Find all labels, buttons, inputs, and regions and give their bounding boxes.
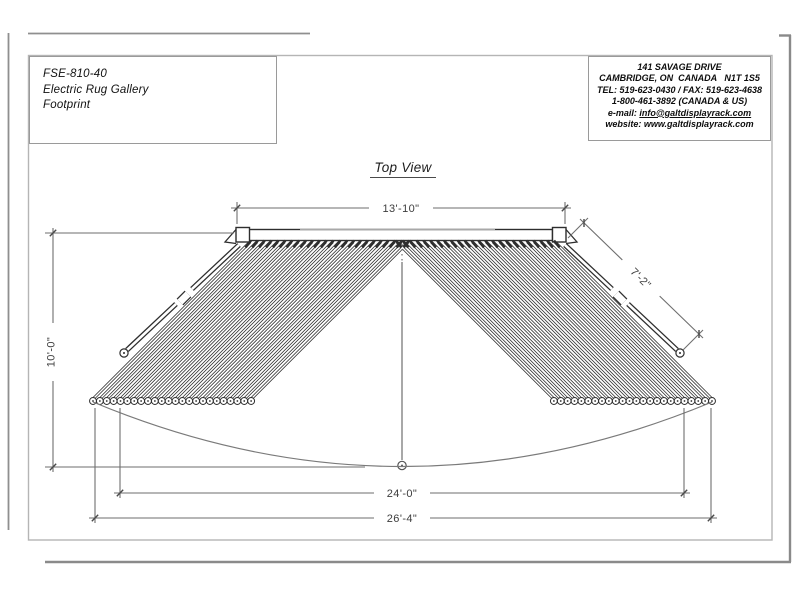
company-block: 141 SAVAGE DRIVE CAMBRIDGE, ON CANADA N1…: [588, 56, 771, 141]
rail-end-cap-right: [553, 228, 567, 243]
end-arm-ball-dot: [123, 352, 125, 354]
arm-ball-dot: [133, 400, 135, 402]
arm-ball-dot: [663, 400, 665, 402]
end-arm-ball-dot: [679, 352, 681, 354]
arm-ball-dot: [223, 400, 225, 402]
arm-ball-dot: [656, 400, 658, 402]
model-number: FSE-810-40: [43, 67, 276, 83]
arm-ball-dot: [168, 400, 170, 402]
arm-ball-dot: [161, 400, 163, 402]
arm-ball-dot: [106, 400, 108, 402]
arm-ball-dot: [243, 400, 245, 402]
view-title-text: Top View: [370, 160, 435, 178]
arm-ball-dot: [629, 400, 631, 402]
company-email: info@galtdisplayrack.com: [639, 108, 751, 118]
arm-ball-dot: [209, 400, 211, 402]
arm-ball-dot: [704, 400, 706, 402]
email-label: e-mail:: [608, 108, 640, 118]
arm-ball-dot: [188, 400, 190, 402]
drawing-sheet-page: { "title_block": { "model": "FSE-810-40"…: [0, 0, 800, 600]
view-title: Top View: [330, 159, 476, 178]
company-website: www.galtdisplayrack.com: [644, 119, 754, 129]
company-tollfree: 1-800-461-3892 (CANADA & US): [589, 96, 770, 107]
arm-ball-dot: [99, 400, 101, 402]
arm-ball-dot: [601, 400, 603, 402]
arm-ball-dot: [216, 400, 218, 402]
arm-ball-dot: [126, 400, 128, 402]
arm-ball-dot: [670, 400, 672, 402]
website-label: website:: [605, 119, 644, 129]
arm-ball-dot: [140, 400, 142, 402]
arm-ball-dot: [697, 400, 699, 402]
arm-ball-dot: [553, 400, 555, 402]
arm-ball-dot: [567, 400, 569, 402]
dim-label-span-outer: 26'-4": [387, 513, 417, 525]
arm-ball-dot: [684, 400, 686, 402]
arm-ball-dot: [649, 400, 651, 402]
arm-ball-dot: [560, 400, 562, 402]
arm-ball-dot: [574, 400, 576, 402]
company-phone: TEL: 519-623-0430 / FAX: 519-623-4638: [589, 85, 770, 96]
arm-ball-dot: [230, 400, 232, 402]
dim-label-depth: 10'-0": [46, 337, 58, 367]
product-name: Electric Rug Gallery: [43, 83, 276, 99]
company-address-line2: CAMBRIDGE, ON CANADA N1T 1S5: [589, 73, 770, 84]
arm-ball-dot: [147, 400, 149, 402]
arm-ball-dot: [594, 400, 596, 402]
arm-ball-dot: [195, 400, 197, 402]
arm-ball-dot: [615, 400, 617, 402]
arm-ball-dot: [236, 400, 238, 402]
arm-ball-dot: [587, 400, 589, 402]
dim-label-rail-width: 13'-10": [383, 203, 420, 215]
arm-ball-dot: [113, 400, 115, 402]
arm-ball-dot: [642, 400, 644, 402]
arm-ball-dot: [202, 400, 204, 402]
dim-label-depth-group: 10'-0": [44, 323, 58, 381]
dim-label-span-inner: 24'-0": [387, 488, 417, 500]
arm-ball-dot: [175, 400, 177, 402]
view-name: Footprint: [43, 98, 276, 114]
arm-ball-dot: [677, 400, 679, 402]
arm-ball-dot: [580, 400, 582, 402]
rail-bar: [249, 230, 553, 241]
arm-ball-dot: [608, 400, 610, 402]
arm-ball-dot: [690, 400, 692, 402]
arm-ball-dot: [635, 400, 637, 402]
arm-ball-dot: [120, 400, 122, 402]
arm-ball-dot: [250, 400, 252, 402]
arm-ball-dot: [154, 400, 156, 402]
company-address-line1: 141 SAVAGE DRIVE: [589, 62, 770, 73]
title-block: FSE-810-40 Electric Rug Gallery Footprin…: [29, 56, 277, 144]
arm-ball-dot: [181, 400, 183, 402]
rail-end-cap-left: [236, 228, 250, 243]
arm-ball-dot: [622, 400, 624, 402]
company-website-line: website: www.galtdisplayrack.com: [589, 119, 770, 130]
company-email-line: e-mail: info@galtdisplayrack.com: [589, 108, 770, 119]
